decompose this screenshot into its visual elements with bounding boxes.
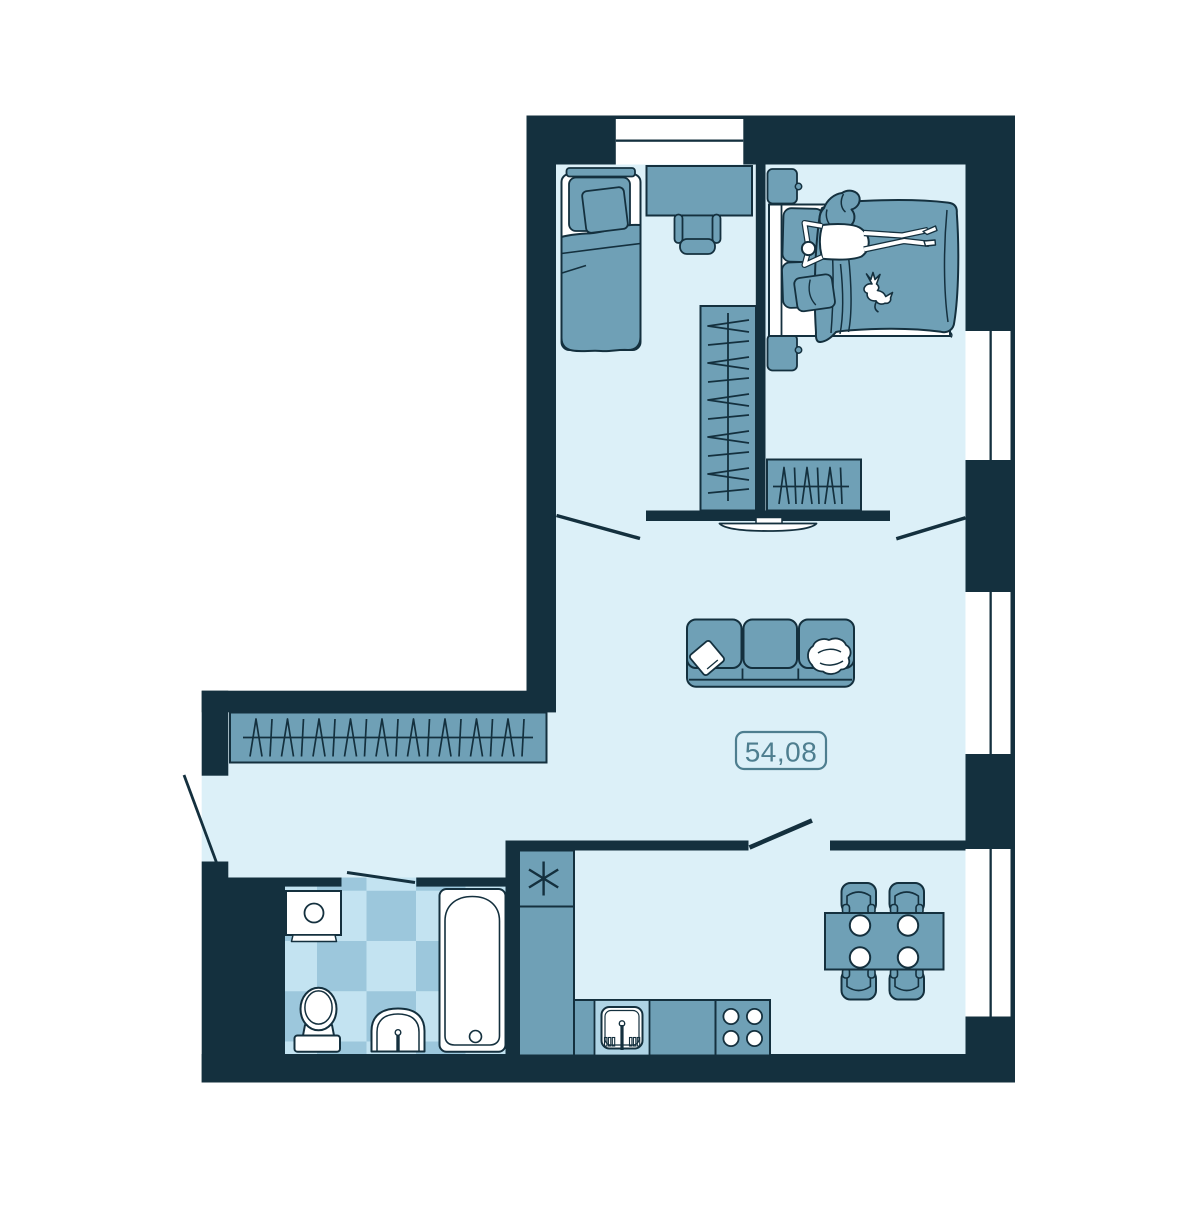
- svg-text:54,08: 54,08: [745, 737, 818, 768]
